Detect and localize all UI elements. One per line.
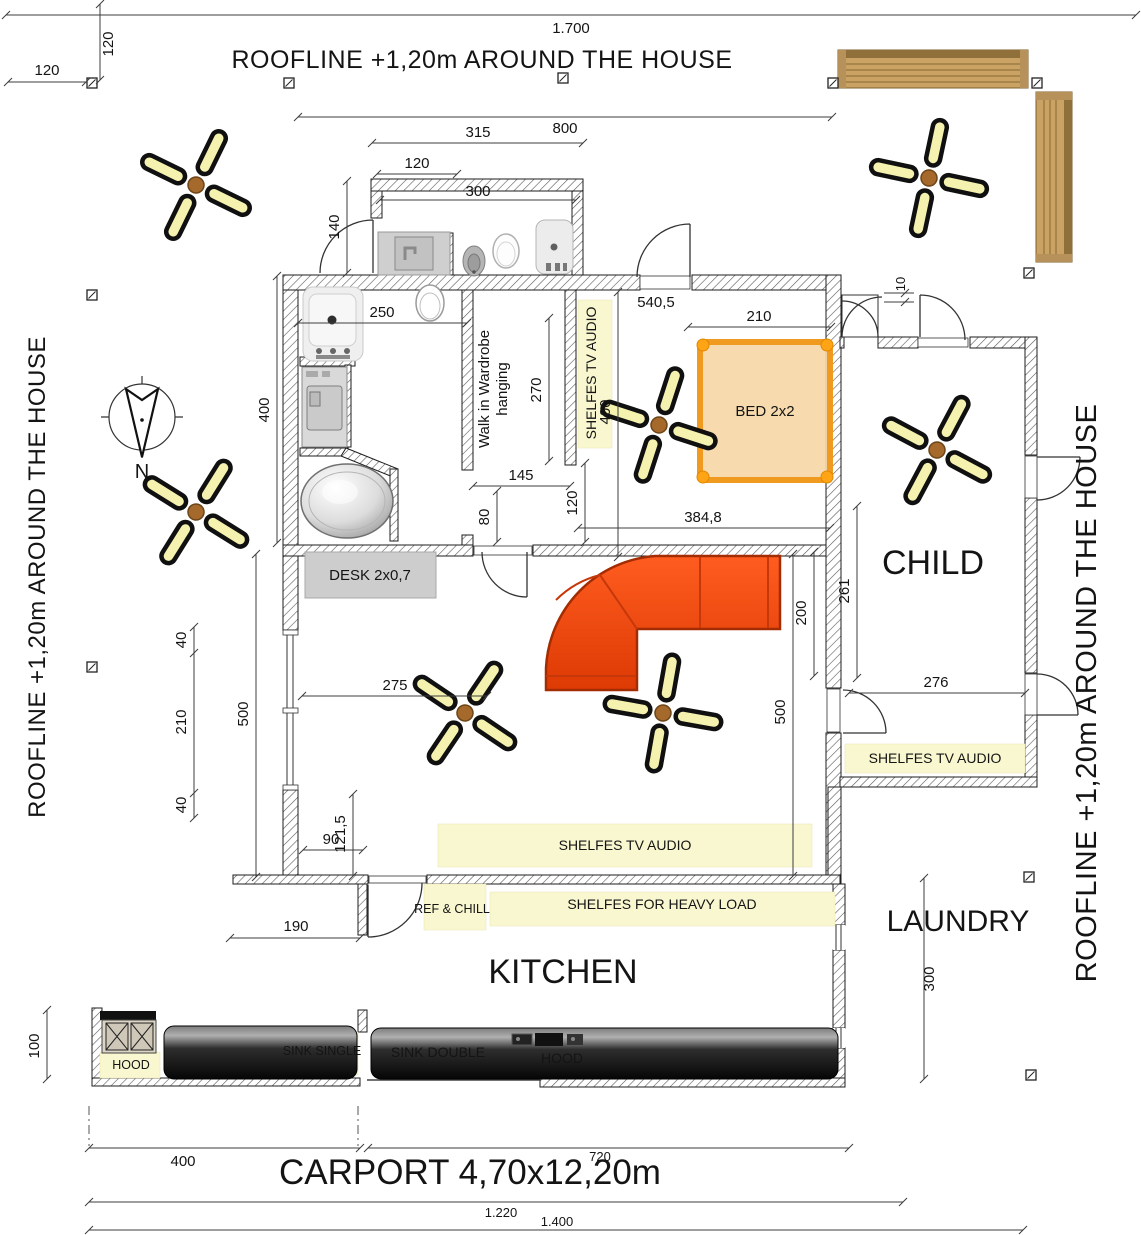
dim-label: 210	[746, 308, 771, 325]
dim-line	[226, 934, 364, 942]
dim-label: 500	[235, 701, 252, 726]
dim-label: 200	[793, 600, 810, 625]
bathroom-toilet	[416, 285, 444, 321]
wall-ext-right	[572, 191, 583, 275]
title-right: ROOFLINE +1,20m AROUND THE HOUSE	[1071, 404, 1103, 983]
dim-label: 121,5	[332, 815, 349, 853]
dim-label: 276	[923, 674, 948, 691]
room-carport: CARPORT 4,70x12,20m	[279, 1153, 661, 1192]
dim-label: 190	[283, 918, 308, 935]
dim-line	[493, 487, 501, 546]
shelves-bedroom-label: SHELFES TV AUDIO	[583, 306, 599, 439]
sill-kitchen	[369, 876, 426, 883]
dim-line	[2, 11, 1140, 19]
dim-label: 1.220	[485, 1205, 518, 1220]
floor-plan: N 1.700 120 120 800 315 120 300 140 250 …	[0, 0, 1141, 1235]
compass-north-label: N	[135, 461, 149, 483]
ext-washer	[378, 232, 450, 275]
dim-label: 400	[170, 1153, 195, 1170]
bench-horizontal	[838, 50, 1028, 88]
dim-line	[853, 502, 861, 682]
door-double-swing	[842, 297, 882, 337]
dim-label: 384,8	[684, 509, 722, 526]
compass: N	[101, 376, 183, 483]
post-icon	[1024, 268, 1034, 278]
dim-label: 315	[465, 124, 490, 141]
ceiling-fan-icon	[869, 382, 1004, 517]
sink-double-label: SINK DOUBLE	[391, 1044, 485, 1060]
door-living-child	[843, 690, 886, 733]
wall-west-upper	[283, 290, 298, 630]
dim-label: 250	[369, 304, 394, 321]
dim-label: 270	[528, 377, 545, 402]
wall-kitchen-left-a	[358, 884, 367, 935]
ceiling-fan-icon	[865, 114, 993, 242]
dim-label: 300	[465, 183, 490, 200]
title-top: ROOFLINE +1,20m AROUND THE HOUSE	[231, 46, 732, 74]
dim-label: 120	[100, 31, 117, 56]
floor-plan-page: N 1.700 120 120 800 315 120 300 140 250 …	[0, 0, 1141, 1235]
dim-label: 261	[836, 578, 853, 603]
dim-label: 10	[893, 277, 908, 291]
wall-child-right-b	[1025, 498, 1037, 673]
dim-label: 275	[382, 677, 407, 694]
dim-line	[581, 459, 589, 546]
ext-shower	[536, 220, 573, 274]
dim-label: 140	[326, 214, 343, 239]
dim-label: 145	[508, 467, 533, 484]
ext-bidet	[463, 246, 485, 276]
dim-label: 800	[552, 120, 577, 137]
dim-label: 300	[921, 966, 938, 991]
door-entrance	[637, 224, 690, 277]
wall-mid-east	[533, 545, 840, 556]
dim-line	[614, 288, 622, 561]
shelves-heavy-label: SHELFES FOR HEAVY LOAD	[567, 896, 756, 912]
bbq-stove	[100, 1011, 156, 1053]
dim-label: 100	[26, 1033, 43, 1058]
dim-line	[810, 548, 818, 680]
dim-label: 120	[34, 62, 59, 79]
wall-living-bottom-east	[427, 875, 840, 884]
dim-line	[273, 272, 281, 547]
hood-left-label: HOOD	[112, 1058, 150, 1072]
dim-line	[252, 550, 260, 881]
bed-label: BED 2x2	[735, 403, 794, 420]
ceiling-fan-icon	[393, 641, 537, 785]
dim-line	[85, 1144, 372, 1152]
sill-hall-living	[474, 546, 532, 555]
wardrobe-label-1: Walk in Wardrobe	[476, 330, 493, 448]
dim-label: 80	[476, 509, 493, 526]
dim-label: 210	[173, 709, 190, 734]
door-hall-living	[482, 552, 527, 597]
bathroom-washer	[302, 367, 347, 447]
post-icon	[1026, 1070, 1036, 1080]
sink-single-label: SINK SINGLE	[283, 1044, 362, 1058]
dim-label: 540,5	[637, 294, 675, 311]
post-icon	[558, 73, 568, 83]
sill-child-east-b	[1025, 674, 1037, 715]
post-icon	[1024, 872, 1034, 882]
dim-label: 40	[173, 632, 190, 649]
title-left: ROOFLINE +1,20m AROUND THE HOUSE	[24, 336, 51, 818]
room-laundry: LAUNDRY	[887, 905, 1030, 938]
shelves-child-label: SHELFES TV AUDIO	[869, 750, 1002, 766]
post-icon	[284, 78, 294, 88]
wall-child-right-a	[1025, 337, 1037, 455]
room-child: CHILD	[882, 544, 984, 582]
dim-line	[190, 623, 198, 822]
ceiling-fan-icon	[130, 119, 262, 251]
post-icon	[87, 662, 97, 672]
wardrobe-label-2: hanging	[494, 362, 511, 415]
dim-line	[4, 78, 90, 86]
hood-right-label: HOOD	[541, 1050, 583, 1066]
wall-child-right-c	[1025, 715, 1037, 787]
dim-label: 120	[404, 155, 429, 172]
door-child-top	[920, 295, 965, 340]
wall-child-top-b	[878, 337, 918, 348]
dim-label: 400	[256, 397, 273, 422]
shelves-living-label: SHELFES TV AUDIO	[559, 837, 692, 853]
cooktop-icon	[512, 1033, 583, 1046]
dim-label: 40	[173, 797, 190, 814]
wall-ext-left	[371, 191, 382, 218]
wall-west-lower	[283, 790, 298, 883]
dim-extension-lines	[89, 1106, 358, 1146]
room-kitchen: KITCHEN	[488, 953, 637, 991]
sill-child-east-a	[1025, 456, 1037, 498]
sill-living-child	[827, 689, 840, 732]
wall-kitchen-left-b	[358, 1010, 367, 1032]
dim-label: 120	[564, 490, 581, 515]
bench-vertical	[1036, 92, 1072, 262]
jacuzzi-tub	[301, 464, 393, 538]
sill-entrance	[640, 276, 690, 289]
post-icon	[87, 290, 97, 300]
dim-label: 1.700	[552, 20, 590, 37]
dim-line	[545, 314, 553, 465]
dim-line	[343, 177, 351, 277]
wall-top-east	[692, 275, 840, 290]
ref-chill-label: REF & CHILL	[414, 902, 490, 916]
dim-line	[43, 1006, 51, 1083]
ext-toilet	[493, 234, 519, 268]
wall-kitchen-right-b	[833, 950, 845, 1028]
wall-laundry-left	[828, 787, 841, 884]
wall-wardrobe-bedroom	[565, 290, 576, 465]
wall-child-bottom	[840, 777, 1037, 787]
desk-label: DESK 2x0,7	[329, 567, 411, 584]
sill-child-door	[918, 338, 968, 347]
post-icon	[828, 78, 838, 88]
wall-bath-wardrobe	[462, 290, 473, 470]
post-icon	[1032, 78, 1042, 88]
dim-line	[349, 790, 357, 880]
window-laundry	[833, 925, 845, 950]
wall-child-top-a	[840, 337, 844, 348]
wall-tub-a	[300, 448, 348, 456]
bathroom-vanity	[303, 287, 363, 361]
dim-label: 500	[772, 699, 789, 724]
dim-label: 400	[597, 399, 614, 424]
dim-label: 1.400	[541, 1214, 574, 1229]
